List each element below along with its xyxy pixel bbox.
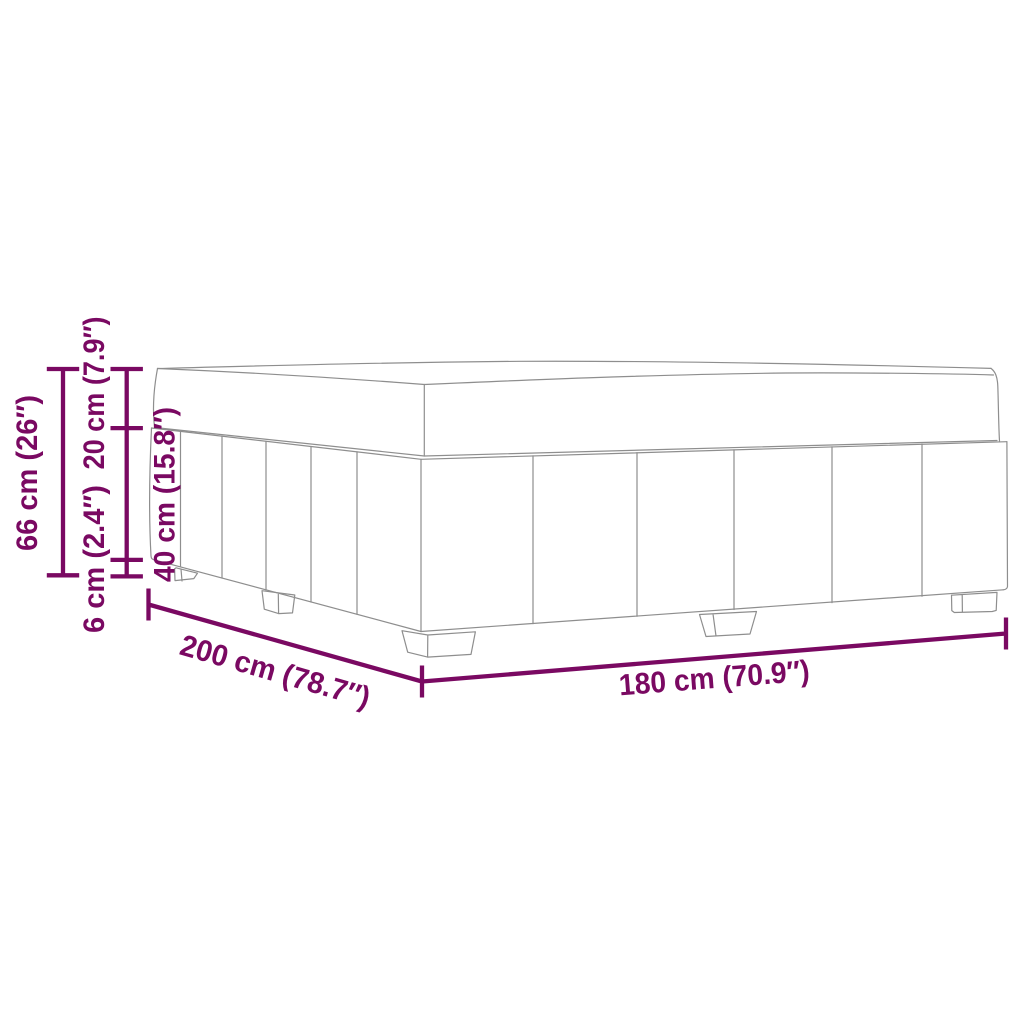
svg-text:40 cm (15.8″): 40 cm (15.8″) [149, 407, 182, 582]
svg-text:6 cm (2.4″): 6 cm (2.4″) [78, 485, 111, 633]
svg-text:20 cm (7.9″): 20 cm (7.9″) [78, 317, 111, 470]
svg-text:66 cm (26″): 66 cm (26″) [11, 395, 44, 551]
